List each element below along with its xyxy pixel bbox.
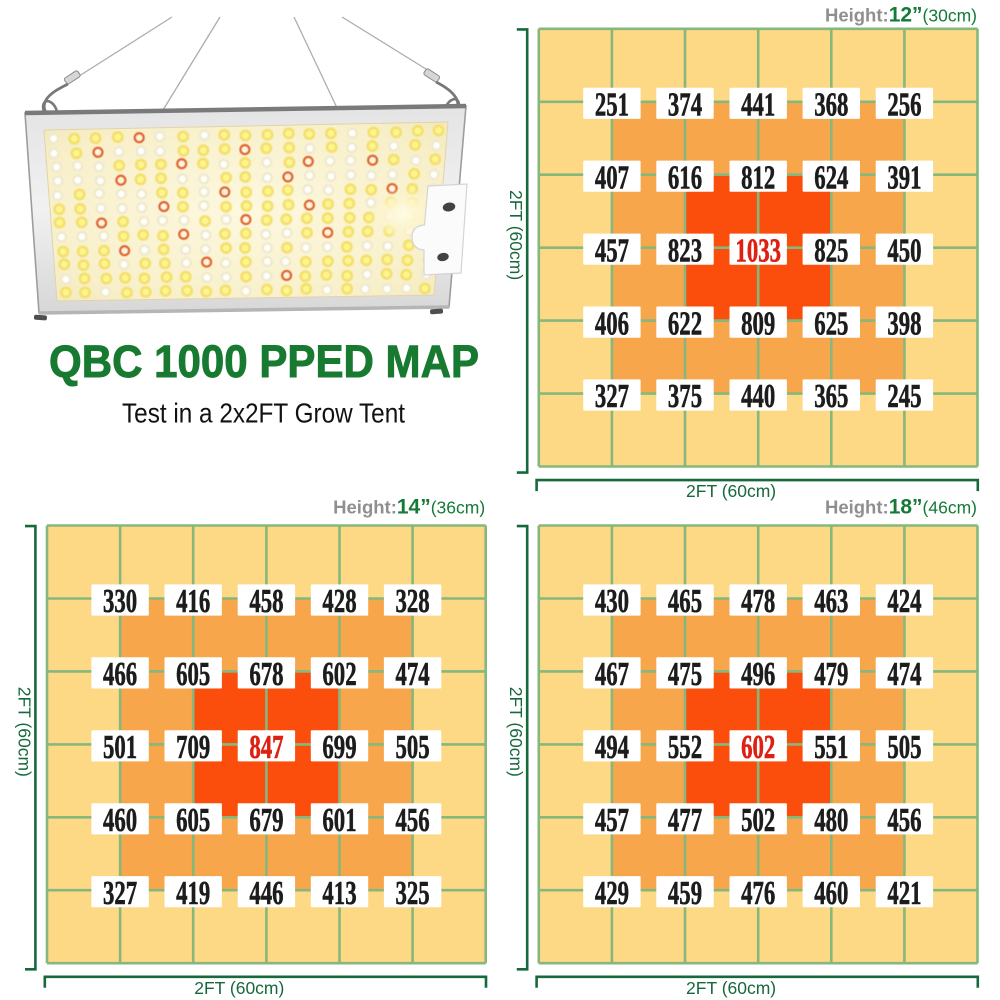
svg-text:327: 327 bbox=[103, 875, 137, 913]
svg-text:601: 601 bbox=[322, 802, 356, 840]
svg-text:457: 457 bbox=[595, 232, 629, 270]
svg-text:327: 327 bbox=[595, 378, 629, 416]
svg-text:Height:14”(36cm): Height:14”(36cm) bbox=[333, 495, 485, 518]
svg-text:Height:18”(46cm): Height:18”(46cm) bbox=[825, 495, 977, 518]
svg-text:256: 256 bbox=[887, 86, 921, 124]
svg-text:374: 374 bbox=[668, 86, 702, 124]
svg-text:463: 463 bbox=[814, 583, 848, 621]
svg-text:2FT (60cm): 2FT (60cm) bbox=[686, 481, 776, 501]
svg-text:245: 245 bbox=[887, 378, 921, 416]
svg-text:502: 502 bbox=[741, 802, 775, 840]
svg-text:809: 809 bbox=[741, 305, 775, 343]
svg-text:501: 501 bbox=[103, 729, 137, 767]
svg-text:365: 365 bbox=[814, 378, 848, 416]
svg-text:Test in a 2x2FT Grow Tent: Test in a 2x2FT Grow Tent bbox=[122, 398, 405, 429]
svg-text:622: 622 bbox=[668, 305, 702, 343]
svg-text:551: 551 bbox=[814, 729, 848, 767]
svg-text:496: 496 bbox=[741, 656, 775, 694]
svg-text:2FT (60cm): 2FT (60cm) bbox=[14, 687, 34, 777]
svg-text:429: 429 bbox=[595, 875, 629, 913]
svg-text:505: 505 bbox=[887, 729, 921, 767]
svg-text:457: 457 bbox=[595, 802, 629, 840]
svg-text:2FT (60cm): 2FT (60cm) bbox=[506, 687, 526, 777]
svg-text:406: 406 bbox=[595, 305, 629, 343]
svg-text:398: 398 bbox=[887, 305, 921, 343]
svg-text:823: 823 bbox=[668, 232, 702, 270]
svg-text:424: 424 bbox=[887, 583, 921, 621]
svg-text:391: 391 bbox=[887, 159, 921, 197]
svg-text:602: 602 bbox=[322, 656, 356, 694]
svg-text:325: 325 bbox=[396, 875, 430, 913]
svg-text:456: 456 bbox=[887, 802, 921, 840]
svg-text:Height:12”(30cm): Height:12”(30cm) bbox=[825, 4, 977, 27]
svg-text:679: 679 bbox=[249, 802, 283, 840]
svg-text:419: 419 bbox=[176, 875, 210, 913]
svg-text:476: 476 bbox=[741, 875, 775, 913]
svg-text:709: 709 bbox=[176, 729, 210, 767]
svg-text:467: 467 bbox=[595, 656, 629, 694]
svg-text:458: 458 bbox=[249, 583, 283, 621]
svg-text:2FT (60cm): 2FT (60cm) bbox=[506, 190, 526, 280]
svg-text:474: 474 bbox=[887, 656, 921, 694]
svg-text:494: 494 bbox=[595, 729, 629, 767]
svg-text:825: 825 bbox=[814, 232, 848, 270]
svg-text:847: 847 bbox=[249, 729, 283, 767]
svg-text:459: 459 bbox=[668, 875, 702, 913]
svg-text:624: 624 bbox=[814, 159, 848, 197]
svg-text:505: 505 bbox=[396, 729, 430, 767]
svg-text:440: 440 bbox=[741, 378, 775, 416]
svg-text:1033: 1033 bbox=[735, 232, 781, 270]
svg-text:416: 416 bbox=[176, 583, 210, 621]
svg-text:446: 446 bbox=[249, 875, 283, 913]
svg-text:478: 478 bbox=[741, 583, 775, 621]
svg-text:428: 428 bbox=[322, 583, 356, 621]
svg-text:475: 475 bbox=[668, 656, 702, 694]
svg-text:625: 625 bbox=[814, 305, 848, 343]
svg-text:328: 328 bbox=[396, 583, 430, 621]
svg-text:251: 251 bbox=[595, 86, 629, 124]
svg-text:466: 466 bbox=[103, 656, 137, 694]
svg-text:2FT (60cm): 2FT (60cm) bbox=[194, 978, 284, 998]
svg-text:678: 678 bbox=[249, 656, 283, 694]
svg-text:474: 474 bbox=[396, 656, 430, 694]
svg-text:460: 460 bbox=[103, 802, 137, 840]
svg-text:477: 477 bbox=[668, 802, 702, 840]
svg-text:QBC 1000 PPED MAP: QBC 1000 PPED MAP bbox=[49, 336, 479, 387]
svg-text:430: 430 bbox=[595, 583, 629, 621]
svg-text:368: 368 bbox=[814, 86, 848, 124]
svg-text:605: 605 bbox=[176, 656, 210, 694]
svg-text:460: 460 bbox=[814, 875, 848, 913]
svg-text:441: 441 bbox=[741, 86, 775, 124]
svg-text:812: 812 bbox=[741, 159, 775, 197]
svg-text:552: 552 bbox=[668, 729, 702, 767]
svg-text:616: 616 bbox=[668, 159, 702, 197]
svg-text:602: 602 bbox=[741, 729, 775, 767]
svg-text:413: 413 bbox=[322, 875, 356, 913]
svg-text:699: 699 bbox=[322, 729, 356, 767]
svg-text:450: 450 bbox=[887, 232, 921, 270]
svg-text:421: 421 bbox=[887, 875, 921, 913]
svg-text:2FT (60cm): 2FT (60cm) bbox=[686, 978, 776, 998]
svg-text:479: 479 bbox=[814, 656, 848, 694]
svg-text:480: 480 bbox=[814, 802, 848, 840]
svg-text:407: 407 bbox=[595, 159, 629, 197]
svg-text:465: 465 bbox=[668, 583, 702, 621]
svg-text:375: 375 bbox=[668, 378, 702, 416]
svg-text:456: 456 bbox=[396, 802, 430, 840]
svg-text:330: 330 bbox=[103, 583, 137, 621]
svg-text:605: 605 bbox=[176, 802, 210, 840]
